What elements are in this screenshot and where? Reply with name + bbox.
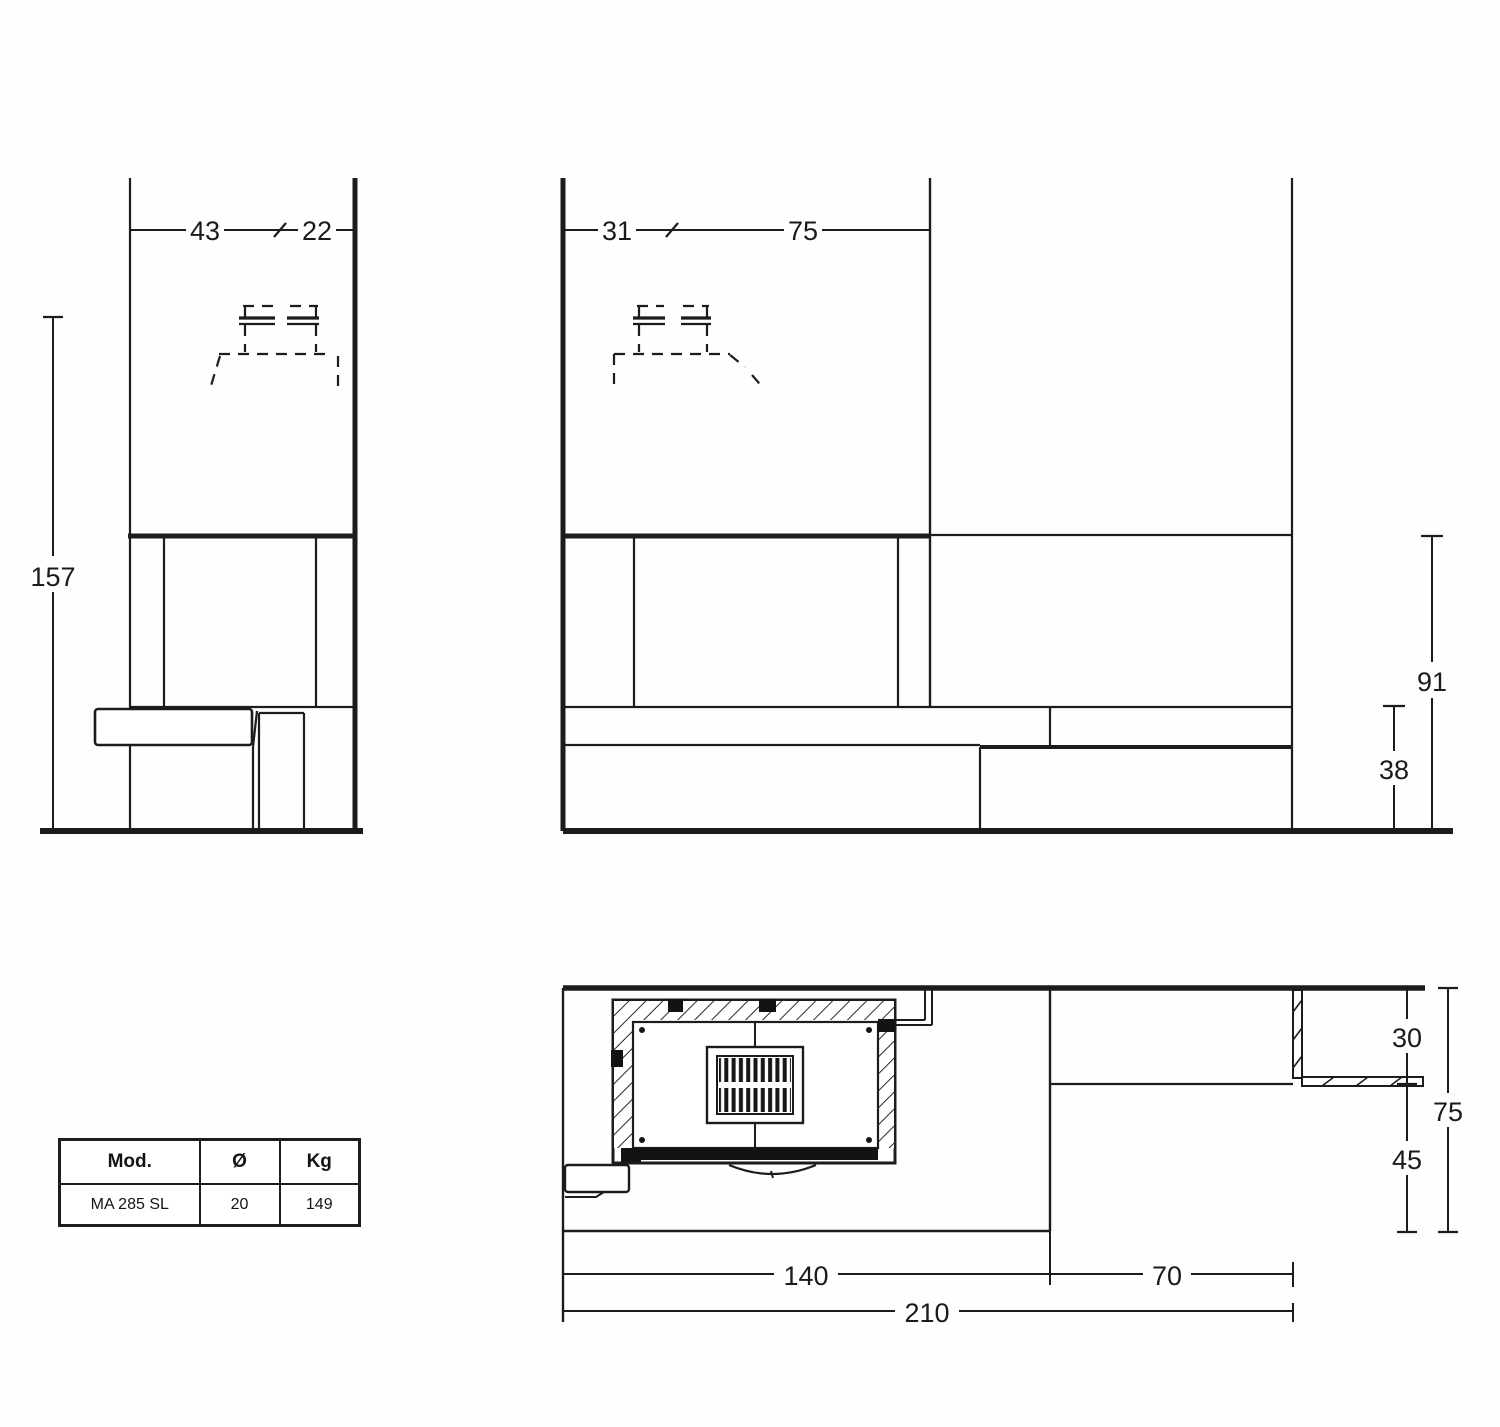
- plan-hood-edge: [895, 988, 932, 1025]
- dim-label-plan-width-side: 70: [1152, 1261, 1182, 1291]
- side-view: 43 22 157: [26, 178, 363, 831]
- spec-header-diameter: Ø: [200, 1140, 280, 1185]
- spec-value-weight: 149: [280, 1184, 360, 1226]
- dim-label-side-width-left: 43: [190, 216, 220, 246]
- spec-value-model: MA 285 SL: [60, 1184, 200, 1226]
- dim-label-plan-depth-total: 75: [1433, 1097, 1463, 1127]
- spec-table: Mod. Ø Kg MA 285 SL 20 149: [58, 1138, 361, 1227]
- dim-label-plan-depth-front: 45: [1392, 1145, 1422, 1175]
- front-view: 31 75 91 38: [561, 178, 1456, 831]
- technical-drawing: 43 22 157: [0, 0, 1500, 1427]
- dim-label-front-hood-height: 91: [1417, 667, 1447, 697]
- dim-label-side-height: 157: [30, 562, 75, 592]
- dim-label-plan-depth-top: 30: [1392, 1023, 1422, 1053]
- dim-label-front-width-left: 31: [602, 216, 632, 246]
- plan-left-step: [565, 1165, 629, 1197]
- dim-label-front-width-right: 75: [788, 216, 818, 246]
- spec-value-diameter: 20: [200, 1184, 280, 1226]
- spec-table-header-row: Mod. Ø Kg: [60, 1140, 360, 1185]
- spec-header-model: Mod.: [60, 1140, 200, 1185]
- plan-view: 30 45 75 140 70: [563, 988, 1471, 1328]
- plan-firebox: [611, 999, 895, 1178]
- dim-label-plan-width-total: 210: [904, 1298, 949, 1328]
- dim-label-plan-width-main: 140: [783, 1261, 828, 1291]
- dim-label-side-width-right: 22: [302, 216, 332, 246]
- dim-label-front-hearth-height: 38: [1379, 755, 1409, 785]
- firebox-glass-front: [633, 1148, 878, 1160]
- spec-header-weight: Kg: [280, 1140, 360, 1185]
- spec-table-data-row: MA 285 SL 20 149: [60, 1184, 360, 1226]
- side-bench: [95, 709, 252, 745]
